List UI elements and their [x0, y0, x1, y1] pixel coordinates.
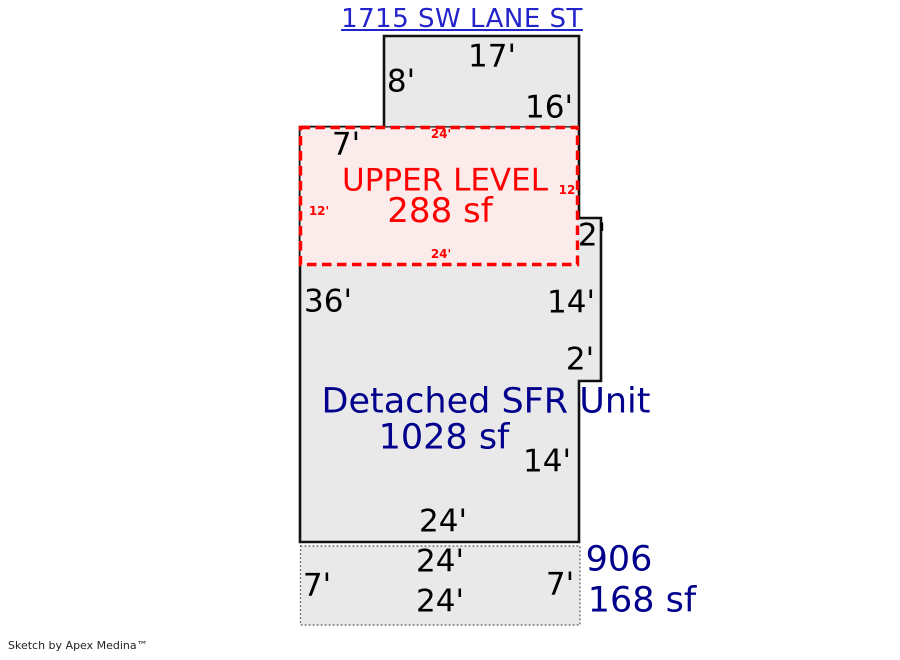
dim-top-left-height: 8' — [387, 67, 415, 98]
unit-title: Detached SFR Unit — [322, 385, 651, 420]
dim-notch-out: 2' — [578, 221, 606, 252]
patio-area: 168 sf — [588, 584, 697, 619]
patio-dim-right: 7' — [546, 570, 574, 601]
upper-level-area: 288 sf — [387, 194, 492, 228]
dim-bottom-width: 24' — [419, 507, 467, 538]
dim-top-right-height: 16' — [525, 93, 573, 124]
upper-level-dim-right: 12 — [559, 184, 576, 196]
dim-right-lower-height: 14' — [523, 447, 571, 478]
dim-step-left-width: 7' — [332, 130, 360, 161]
patio-dim-left: 7' — [303, 571, 331, 602]
upper-level-dim-bottom: 24' — [431, 248, 451, 260]
dim-right-upper-height: 14' — [547, 288, 595, 319]
patio-dim-bottom: 24' — [416, 587, 464, 618]
upper-level-dim-top: 24' — [431, 128, 451, 140]
dim-notch-in: 2' — [566, 345, 594, 376]
upper-level-dim-left: 12' — [309, 205, 329, 217]
patio-number: 906 — [586, 543, 653, 578]
address-title: 1715 SW LANE ST — [341, 6, 583, 32]
property-sketch: 1715 SW LANE ST 17' 8' 16' 7' 24' UPPER … — [0, 0, 900, 660]
credit-text: Sketch by Apex Medina™ — [8, 639, 148, 652]
unit-area: 1028 sf — [379, 421, 510, 456]
dim-left-height: 36' — [304, 287, 352, 318]
dim-top-width: 17' — [468, 42, 516, 73]
patio-dim-top: 24' — [416, 547, 464, 578]
